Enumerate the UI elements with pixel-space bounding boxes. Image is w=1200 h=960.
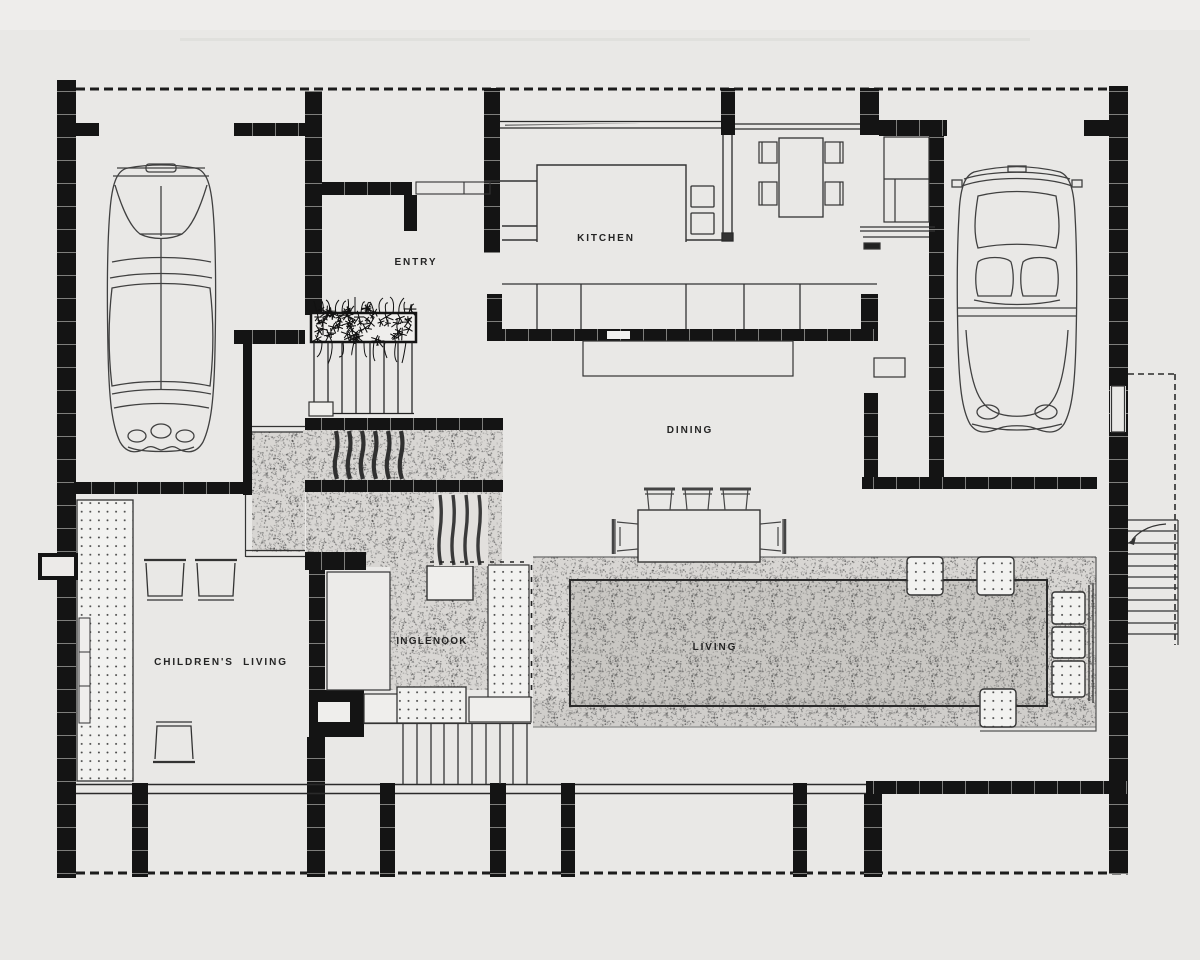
svg-text:CHILDREN'S LIVING: CHILDREN'S LIVING bbox=[154, 657, 288, 668]
svg-text:INGLENOOK: INGLENOOK bbox=[396, 636, 467, 647]
svg-text:KITCHEN: KITCHEN bbox=[577, 233, 635, 244]
svg-text:DINING: DINING bbox=[667, 425, 713, 436]
svg-text:LIVING: LIVING bbox=[693, 642, 738, 653]
svg-text:ENTRY: ENTRY bbox=[394, 257, 437, 268]
